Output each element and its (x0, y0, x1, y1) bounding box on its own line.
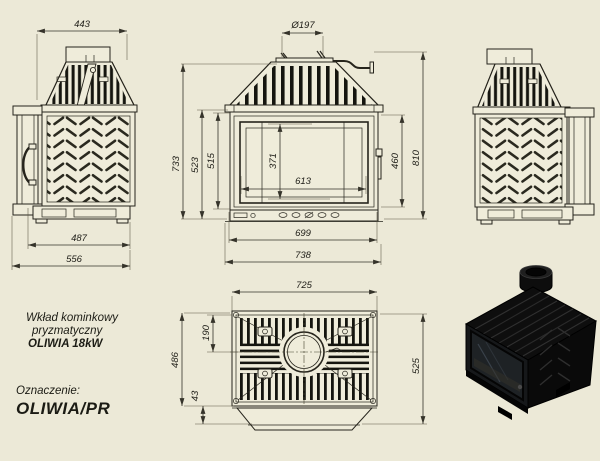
render-3d-fireplace (466, 266, 596, 421)
designation-block: Oznaczenie: OLIWIA/PR (16, 385, 110, 419)
technical-drawing-sheet: 443 487 556 (0, 0, 600, 461)
side-view-right (473, 49, 594, 224)
dim-top-depth-body: 486 (170, 351, 181, 368)
dim-height-515: 515 (206, 152, 217, 169)
dim-glass-width: 613 (295, 176, 312, 187)
product-title-block: Wkład kominkowy pryzmatyczny OLIWIA 18kW (26, 312, 118, 351)
designation-label: Oznaczenie: (16, 385, 110, 397)
dim-side-total-depth: 556 (66, 254, 83, 265)
dim-width-overall: 738 (295, 250, 312, 261)
dim-side-base-width: 487 (71, 233, 88, 244)
dim-top-width: 725 (296, 280, 313, 291)
dim-side-top-width: 443 (74, 19, 91, 30)
designation-value: OLIWIA/PR (16, 399, 110, 419)
dim-door-height: 460 (390, 152, 401, 169)
dim-top-depth-overall: 525 (411, 357, 422, 374)
dim-height-810: 810 (411, 149, 422, 166)
product-line3: OLIWIA 18kW (26, 338, 118, 351)
dim-width-inner: 699 (295, 228, 312, 239)
product-line2: pryzmatyczny (26, 325, 118, 338)
front-view: Ø197 733 523 515 371 613 460 810 699 (171, 20, 427, 265)
dim-glass-height: 371 (268, 153, 279, 169)
dim-height-523: 523 (190, 156, 201, 173)
product-line1: Wkład kominkowy (26, 312, 118, 325)
dim-height-733: 733 (171, 155, 182, 172)
dim-top-flue-center: 190 (201, 324, 212, 341)
top-view: 725 486 (170, 280, 427, 430)
dim-flue-diameter: Ø197 (290, 20, 315, 31)
dim-top-front-lip: 43 (190, 390, 201, 401)
side-view-left: 443 487 556 (12, 19, 137, 270)
